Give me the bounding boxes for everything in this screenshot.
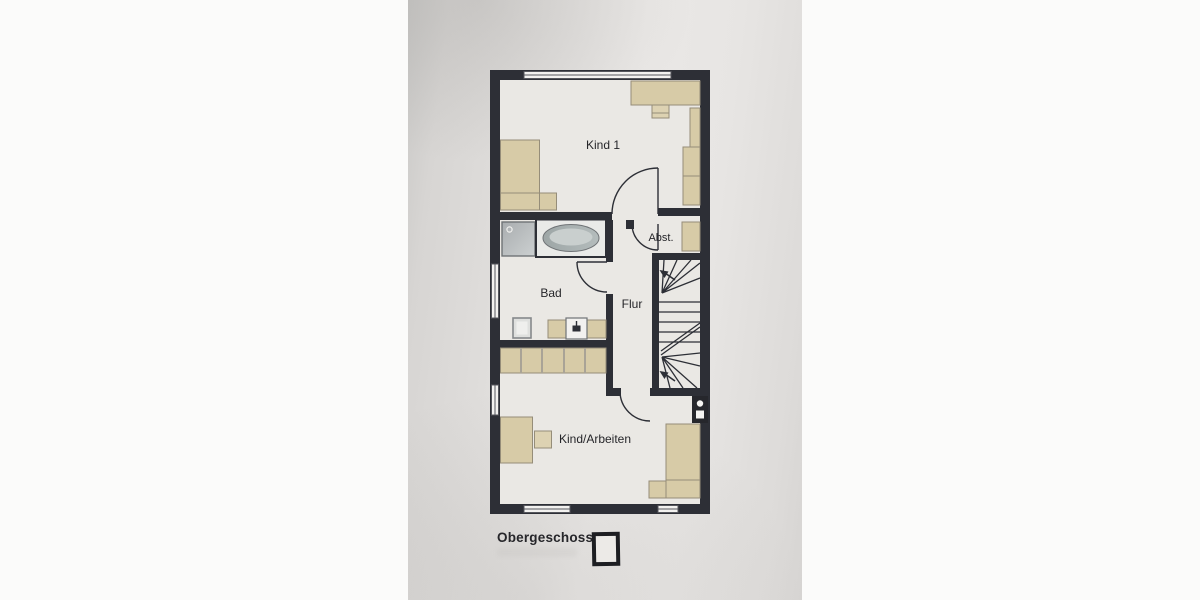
bed-kind1 [501,140,540,210]
floor-plan-svg: Kind 1 Bad Flur Abst. Kind/Arbeiten Ober… [0,0,1200,600]
wardrobe-row [501,348,607,373]
window-top [524,72,671,79]
window-bottom-right [658,506,678,513]
sink-vanity [548,318,606,339]
floor-caption: Obergeschoss [497,530,593,545]
nightstand-kind-arbeiten [649,481,666,498]
shelf-kind1-upper [690,108,700,147]
window-left-kind-arbeiten [492,385,499,415]
chair-kind1 [652,105,669,118]
window-left-bad [492,264,499,318]
bathtub [536,220,606,258]
desk-kind1 [631,81,700,105]
room-label-kind-arbeiten: Kind/Arbeiten [559,432,631,446]
floor-plan-icon [594,534,619,564]
shelf-kind1-lower [683,147,700,205]
chair-kind-arbeiten [535,431,552,448]
nightstand-kind1 [540,193,557,210]
toilet [513,318,531,338]
desk-kind-arbeiten [501,417,533,463]
scanned-floor-plan-page: Kind 1 Bad Flur Abst. Kind/Arbeiten Ober… [0,0,1200,600]
room-label-abst: Abst. [648,232,673,244]
room-label-flur: Flur [622,297,643,311]
room-label-bad: Bad [540,286,561,300]
shelf-abst [682,222,700,251]
shower [502,222,535,256]
chimney-shaft [692,396,708,423]
bed-kind-arbeiten [666,424,700,498]
window-bottom-left [524,506,570,513]
room-label-kind1: Kind 1 [586,138,620,152]
